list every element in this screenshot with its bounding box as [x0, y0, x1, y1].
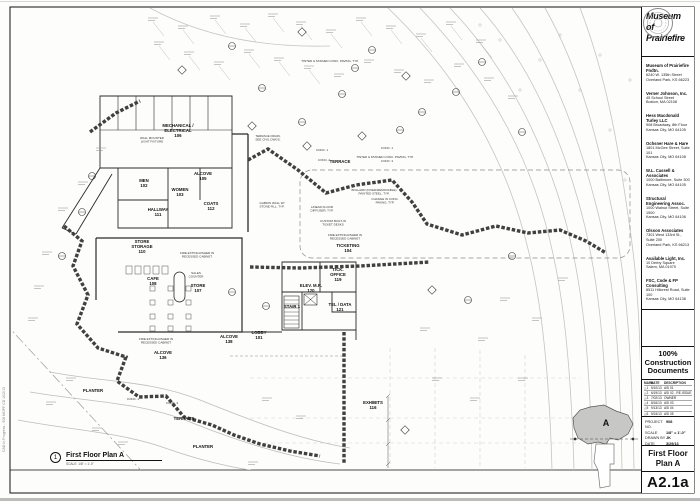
- room-label: CAFE108: [147, 276, 159, 286]
- room-label: TERRACE: [174, 416, 195, 421]
- exhibits-floor-grid: [250, 348, 580, 468]
- project-info-row: PROJECT NO.908: [645, 420, 692, 431]
- consultant-entry: Structural Engineering Assoc.1000 Walnut…: [646, 196, 691, 220]
- room-label: EXHIBITS116: [363, 400, 383, 410]
- building-walls: [62, 96, 356, 356]
- room-label: TICK.OFFICE119: [330, 267, 346, 282]
- dimension-lines: [386, 394, 390, 468]
- room-label: TICKETING104: [336, 243, 360, 253]
- keyplan-area-b-shape: [594, 444, 614, 488]
- sheet-number: A2.1a: [642, 472, 694, 493]
- room-label: ALCOVE105: [194, 171, 212, 181]
- architect-seal: [642, 310, 694, 347]
- plan-note: LINEAR FLOORDIFFUSER, TYP.: [311, 205, 334, 212]
- room-label: ALCOVE138: [220, 334, 238, 344]
- room-label: STAIR 1: [284, 304, 301, 309]
- consultant-entry: Olsson Associates7301 West 133rd St., Su…: [646, 228, 691, 247]
- plan-note: CONC. 1: [127, 397, 140, 401]
- room-label: LOBBY101: [251, 330, 266, 340]
- room-label: MECHANICAL /ELECTRICAL106: [162, 123, 194, 138]
- plan-note: CONC. 1: [316, 148, 329, 152]
- plan-note: WALL MOUNTEDLIGHT FIXTURE: [140, 136, 165, 143]
- drawing-title: 1 First Floor Plan A SCALE: 1/8" = 1'-0": [50, 452, 162, 466]
- plan-note: BOLLARD (FIXED/REMOVABLE)PAINTED STEEL, …: [352, 188, 397, 195]
- consultant-entry: FSC, Code & FP Consulting8511 Hillcrest …: [646, 278, 691, 302]
- consultant-list: Museum of Prairiefire Fndtn.6240 W. 135t…: [642, 57, 694, 310]
- drawing-sheet: MECHANICAL /ELECTRICAL106MEN102WOMEN103A…: [0, 0, 700, 501]
- plan-note: FIRE EXTINGUISHER INRECESSED CABINET: [180, 251, 214, 258]
- plot-stamp: CAD In Progress - 908 MOPF CD 10/2/13: [2, 332, 6, 452]
- construction-status: 100% Construction Documents: [642, 347, 694, 380]
- room-label: ALCOVE136: [154, 350, 172, 360]
- plan-note: SALESCOUNTER: [189, 271, 205, 278]
- gabion-stone-walls: [64, 101, 606, 464]
- sheet-title-line: Plan A: [656, 459, 681, 469]
- plan-note: CONC. 3: [166, 401, 179, 405]
- status-line: Documents: [648, 367, 689, 376]
- room-label: TERRACE: [330, 159, 351, 164]
- room-label: ELEV. M.R.120: [300, 283, 322, 293]
- consultant-entry: Verner Johnson, Inc.45 School StreetBost…: [646, 91, 691, 105]
- consultant-entry: Hess Macdonald Turley LLC908 Broadway, 8…: [646, 113, 691, 132]
- room-label: COATS112: [204, 201, 219, 211]
- plan-note: CUSTOM BUILT-INTICKET DESKS: [320, 219, 346, 226]
- consultant-entry: Ochsner Hare & Hare1801 McGee Street, Su…: [646, 141, 691, 160]
- site-contour-lines: [150, 8, 641, 470]
- plan-note: CONC. 2: [318, 158, 331, 162]
- keynote-symbols: [59, 28, 526, 434]
- project-info: PROJECT NO.908SCALE1/8" = 1'-0"DRAWN BYJ…: [642, 417, 694, 446]
- room-label: PLANTER: [193, 444, 214, 449]
- plan-note: FIRE EXTINGUISHER INRECESSED CABINET: [328, 233, 362, 240]
- consultant-entry: W.L. Cassell & Associates1000 Baltimore,…: [646, 168, 691, 187]
- sheet-title: First Floor Plan A: [642, 446, 694, 472]
- plan-note: FIRE EXTINGUISHER INRECESSED CABINET: [139, 337, 173, 344]
- consultant-entry: Available Light, Inc.10 Derby SquareSale…: [646, 256, 691, 270]
- match-line-dot: [574, 438, 577, 441]
- plan-note: TERRACE DRAIN,SEE CIVIL DWGS.: [255, 134, 281, 141]
- plan-note: CONC. 3: [381, 159, 394, 163]
- keyplan-area-label: A: [603, 418, 610, 428]
- revision-table: MARK DATE DESCRIPTION △15/10/13ASI 01△26…: [642, 380, 694, 417]
- room-label: STORE107: [191, 283, 206, 293]
- consultant-entry: Museum of Prairiefire Fndtn.6240 W. 135t…: [646, 63, 691, 82]
- plan-note: CONC. 1: [381, 146, 394, 150]
- room-label: PLANTER: [83, 388, 104, 393]
- drawing-name: First Floor Plan A: [66, 452, 162, 461]
- room-label: MEN102: [139, 178, 149, 188]
- drawing-scale: SCALE: 1/8" = 1'-0": [66, 462, 162, 466]
- room-label: STORESTORAGE110: [131, 239, 152, 254]
- sheet-title-line: First Floor: [648, 449, 688, 459]
- drawing-number-bubble: 1: [50, 452, 61, 463]
- room-label: HALLWAY111: [148, 207, 169, 217]
- plan-note: GABION WALL W/STONE FILL, TYP.: [259, 201, 284, 208]
- plan-note: CHANGE IN CONC.PAVING, TYP.: [371, 197, 398, 204]
- key-plan: A: [570, 404, 638, 494]
- match-line-dot: [632, 438, 635, 441]
- plan-note: TINTED & STAINED CONC. PAVING, TYP.: [301, 59, 359, 63]
- title-block: Museum of Prairiefire Museum of Prairief…: [641, 7, 694, 493]
- room-label: WOMEN103: [172, 187, 189, 197]
- annotation-marks: [28, 14, 568, 465]
